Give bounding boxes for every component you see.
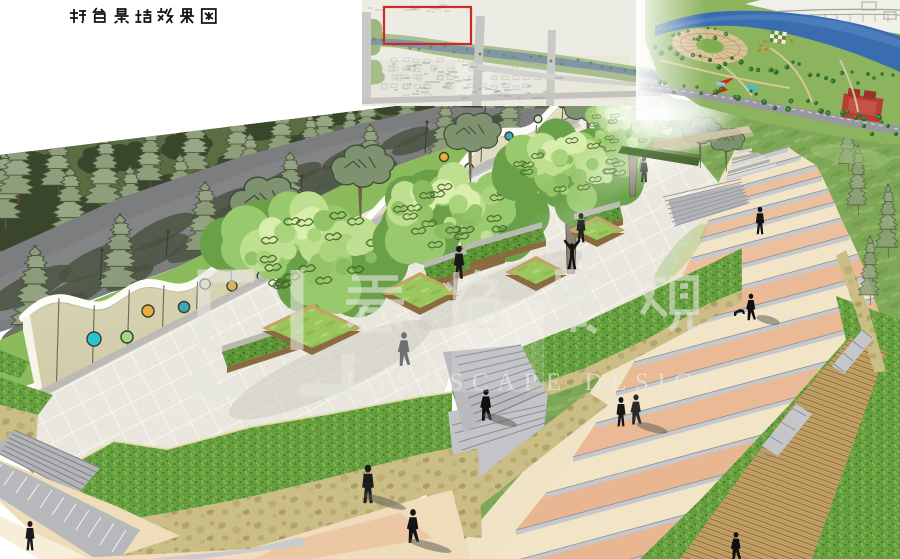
svg-text:LANDSCAPE DESIGN: LANDSCAPE DESIGN (346, 369, 727, 396)
